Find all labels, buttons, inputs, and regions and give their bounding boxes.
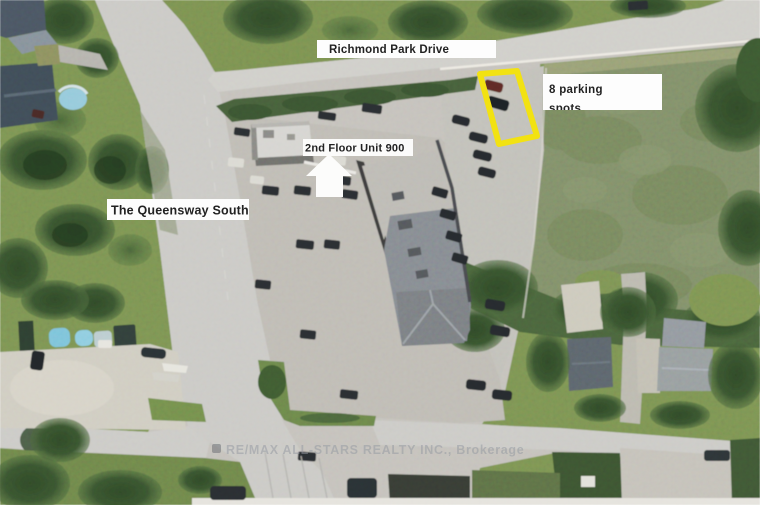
svg-text:8 parking: 8 parking	[549, 84, 603, 96]
svg-text:The Queensway South: The Queensway South	[111, 204, 249, 218]
svg-text:2nd Floor Unit 900: 2nd Floor Unit 900	[305, 143, 405, 155]
svg-text:Richmond Park Drive: Richmond Park Drive	[329, 44, 449, 56]
svg-text:RE/MAX ALL-STARS REALTY INC.,: RE/MAX ALL-STARS REALTY INC., Brokerage	[226, 443, 524, 457]
